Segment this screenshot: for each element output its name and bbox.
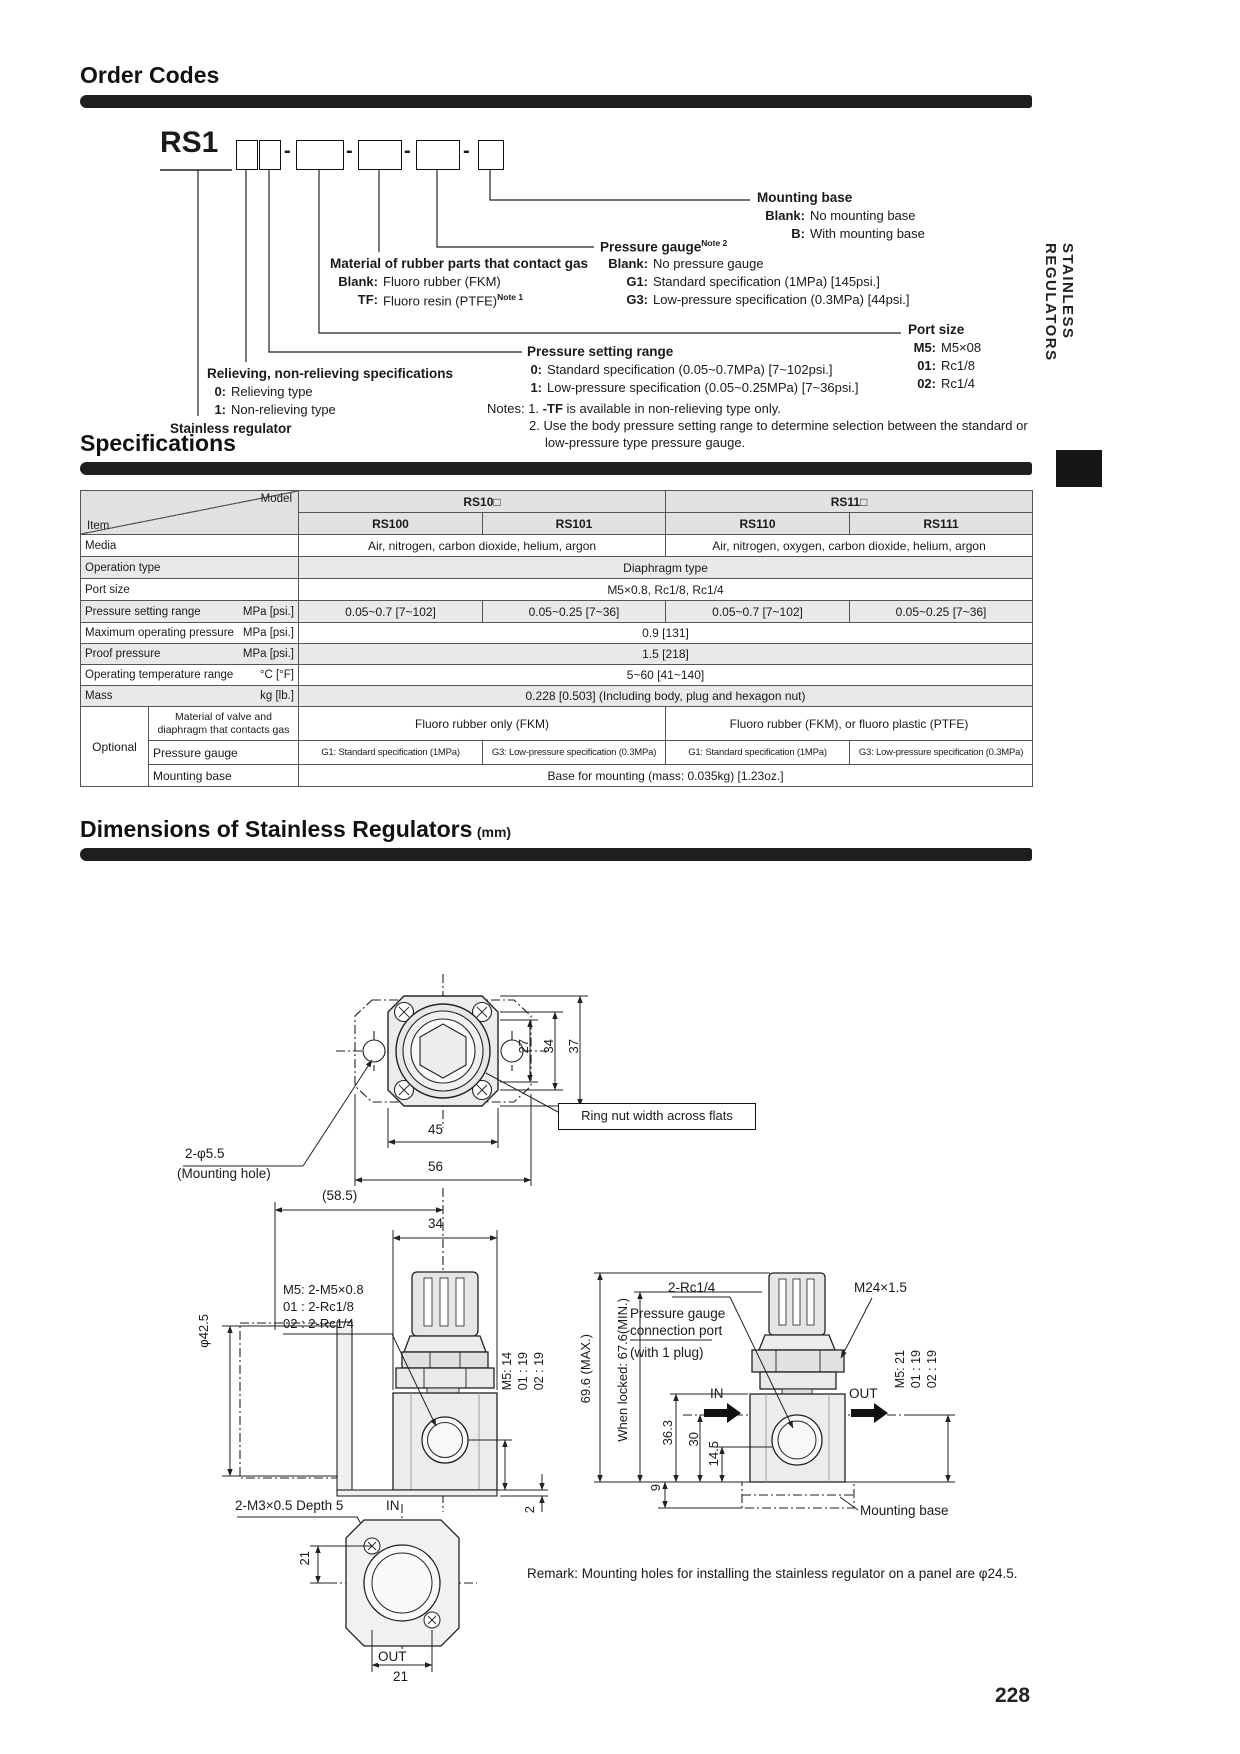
mounting-hole-dim: 2-φ5.5 xyxy=(185,1146,225,1161)
dim-9: 9 xyxy=(648,1484,663,1491)
specifications-title: Specifications xyxy=(80,430,236,457)
specifications-rule xyxy=(80,462,1032,475)
relieving-options: 0:Relieving type 1:Non-relieving type xyxy=(211,384,336,420)
side-tab-label: STAINLESS REGULATORS xyxy=(1042,243,1076,453)
corner-model-label: Model xyxy=(261,493,292,505)
port-thread-02: 02 : 2-Rc1/4 xyxy=(283,1315,364,1332)
table-row: Optional Material of valve and diaphragm… xyxy=(81,707,1033,741)
out-height-02: 02 : 19 xyxy=(925,1350,939,1388)
option-text: Rc1/4 xyxy=(941,376,975,391)
pressure-range-value: 0.05~0.7 [7~102] xyxy=(666,601,850,623)
table-row: Media Air, nitrogen, carbon dioxide, hel… xyxy=(81,535,1033,557)
max-pressure-value: 0.9 [131] xyxy=(299,623,1033,644)
table-row: Port size M5×0.8, Rc1/8, Rc1/4 xyxy=(81,579,1033,601)
order-code-box-material xyxy=(358,140,402,170)
gauge-option: G1: Standard specification (1MPa) xyxy=(299,741,483,765)
dim-2: 2 xyxy=(522,1506,537,1513)
port-size-value: M5×0.8, Rc1/8, Rc1/4 xyxy=(299,579,1033,601)
option-text: Non-relieving type xyxy=(231,402,336,417)
row-label-media: Media xyxy=(81,535,299,557)
row-label-proof-pressure: Proof pressureMPa [psi.] xyxy=(81,644,299,665)
table-row: Proof pressureMPa [psi.] 1.5 [218] xyxy=(81,644,1033,665)
option-code: Blank: xyxy=(600,256,648,271)
option-text: Standard specification (1MPa) [145psi.] xyxy=(653,274,880,289)
option-text: M5×08 xyxy=(941,340,981,355)
catalog-page: Order Codes RS1 - - - - Mounting base Bl… xyxy=(0,0,1240,1754)
corner-item-label: Item xyxy=(87,520,109,532)
mounting-base-callout: Mounting base xyxy=(860,1503,949,1518)
dimensions-unit: (mm) xyxy=(477,824,511,840)
operation-value: Diaphragm type xyxy=(299,557,1033,579)
option-code: M5: xyxy=(908,340,936,355)
media-rs10: Air, nitrogen, carbon dioxide, helium, a… xyxy=(299,535,666,557)
material-options: Blank:Fluoro rubber (FKM) TF:Fluoro resi… xyxy=(330,274,523,311)
option-code: Blank: xyxy=(757,208,805,223)
option-code: TF: xyxy=(330,292,378,308)
order-code-dash: - xyxy=(463,140,470,163)
valve-material-rs11: Fluoro rubber (FKM), or fluoro plastic (… xyxy=(666,707,1033,741)
option-text: No mounting base xyxy=(810,208,916,223)
out-label-side: OUT xyxy=(849,1386,878,1401)
dim-56: 56 xyxy=(428,1159,443,1174)
mounting-base-value: Base for mounting (mass: 0.035kg) [1.23o… xyxy=(299,765,1033,787)
material-title: Material of rubber parts that contact ga… xyxy=(330,256,588,271)
order-code-dash: - xyxy=(284,140,291,163)
pressure-range-value: 0.05~0.25 [7~36] xyxy=(850,601,1033,623)
order-code-box-pressure-gauge xyxy=(416,140,460,170)
note-ref: Note 1 xyxy=(497,292,523,302)
valve-material-rs10: Fluoro rubber only (FKM) xyxy=(299,707,666,741)
option-code: B: xyxy=(757,226,805,241)
row-label-temp-range: Operating temperature range°C [°F] xyxy=(81,665,299,686)
table-row: Masskg [lb.] 0.228 [0.503] (Including bo… xyxy=(81,686,1033,707)
order-code-box-pressure-range xyxy=(259,140,281,170)
order-code-dash: - xyxy=(346,140,353,163)
row-label-pressure-gauge: Pressure gauge xyxy=(149,741,299,765)
model-item-corner-cell: Model Item xyxy=(81,491,299,535)
unit-label: MPa [psi.] xyxy=(243,648,294,660)
column-group-rs11: RS11□ xyxy=(666,491,1033,513)
pressure-gauge-options: Blank:No pressure gauge G1:Standard spec… xyxy=(600,256,910,310)
gauge-option: G1: Standard specification (1MPa) xyxy=(666,741,850,765)
order-code-box-relieving xyxy=(236,140,258,170)
row-label-mounting-base: Mounting base xyxy=(149,765,299,787)
order-code-box-mounting-base xyxy=(478,140,504,170)
row-label-operation: Operation type xyxy=(81,557,299,579)
bottom-view-body xyxy=(346,1520,459,1646)
out-height-01: 01 : 19 xyxy=(909,1350,923,1388)
option-code: 1: xyxy=(211,402,226,417)
port-thread-01: 01 : 2-Rc1/8 xyxy=(283,1298,364,1315)
note2-text: Use the body pressure setting range to d… xyxy=(543,418,1027,433)
pressure-range-value: 0.05~0.7 [7~102] xyxy=(299,601,483,623)
option-text: Relieving type xyxy=(231,384,313,399)
out-label-bottom: OUT xyxy=(378,1649,407,1664)
in-label-front: IN xyxy=(386,1498,400,1513)
option-code: 01: xyxy=(908,358,936,373)
notes-label: Notes: xyxy=(487,401,525,416)
mounting-base-title: Mounting base xyxy=(757,190,852,205)
dimensions-title: Dimensions of Stainless Regulators (mm) xyxy=(80,816,511,843)
option-code: 0: xyxy=(527,362,542,377)
row-label-port-size: Port size xyxy=(81,579,299,601)
dim-67-6-locked: When locked: 67.6(MIN.) xyxy=(615,1298,630,1442)
relieving-title: Relieving, non-relieving specifications xyxy=(207,366,453,381)
option-text: Standard specification (0.05~0.7MPa) [7~… xyxy=(547,362,832,377)
unit-label: MPa [psi.] xyxy=(243,627,294,639)
port-size-title: Port size xyxy=(908,322,964,337)
dim-36-3: 36.3 xyxy=(660,1420,675,1445)
option-text: Rc1/8 xyxy=(941,358,975,373)
order-codes-rule xyxy=(80,95,1032,108)
dim-34-top: 34 xyxy=(541,1039,556,1053)
port-thread-m5: M5: 2-M5×0.8 xyxy=(283,1281,364,1298)
option-text: With mounting base xyxy=(810,226,925,241)
row-label-pressure-range: Pressure setting rangeMPa [psi.] xyxy=(81,601,299,623)
gauge-option: G3: Low-pressure specification (0.3MPa) xyxy=(483,741,666,765)
pressure-range-value: 0.05~0.25 [7~36] xyxy=(483,601,666,623)
gauge-option: G3: Low-pressure specification (0.3MPa) xyxy=(850,741,1033,765)
dim-dia-42-5: φ42.5 xyxy=(196,1314,211,1348)
option-text: Low-pressure specification (0.3MPa) [44p… xyxy=(653,292,910,307)
column-rs111: RS111 xyxy=(850,513,1033,535)
port-thread-callout: M5: 2-M5×0.8 01 : 2-Rc1/8 02 : 2-Rc1/4 xyxy=(283,1281,364,1332)
option-code: 1: xyxy=(527,380,542,395)
table-row: Operation type Diaphragm type xyxy=(81,557,1033,579)
option-code: Blank: xyxy=(330,274,378,289)
media-rs11: Air, nitrogen, oxygen, carbon dioxide, h… xyxy=(666,535,1033,557)
side-view-body xyxy=(750,1273,845,1482)
order-code-box-port-size xyxy=(296,140,344,170)
dim-21-bottom: 21 xyxy=(393,1669,408,1684)
note1-number: 1. xyxy=(528,401,539,416)
note1-code: -TF xyxy=(543,401,563,416)
order-code-prefix: RS1 xyxy=(160,126,218,160)
column-rs100: RS100 xyxy=(299,513,483,535)
dim-27: 27 xyxy=(516,1039,531,1053)
note-ref: Note 2 xyxy=(701,238,727,248)
option-code: 02: xyxy=(908,376,936,391)
dim-14-5: 14.5 xyxy=(706,1441,721,1466)
order-codes-title: Order Codes xyxy=(80,62,219,89)
table-row: Maximum operating pressureMPa [psi.] 0.9… xyxy=(81,623,1033,644)
dim-37: 37 xyxy=(566,1039,581,1053)
row-label-mass: Masskg [lb.] xyxy=(81,686,299,707)
port-height-02: 02 : 19 xyxy=(532,1352,546,1390)
port-height-01: 01 : 19 xyxy=(516,1352,530,1390)
unit-label: kg [lb.] xyxy=(260,690,294,702)
specifications-table: Model Item RS10□ RS11□ RS100 RS101 RS110… xyxy=(80,490,1033,787)
pressure-gauge-title: Pressure gaugeNote 2 xyxy=(600,238,727,255)
in-label-side: IN xyxy=(710,1386,724,1401)
ring-nut-callout: Ring nut width across flats xyxy=(558,1103,756,1130)
table-row: Mounting base Base for mounting (mass: 0… xyxy=(81,765,1033,787)
order-code-dash: - xyxy=(404,140,411,163)
mounting-hole-label: (Mounting hole) xyxy=(177,1166,271,1181)
column-rs110: RS110 xyxy=(666,513,850,535)
dimensions-rule xyxy=(80,848,1032,861)
port-size-options: M5:M5×08 01:Rc1/8 02:Rc1/4 xyxy=(908,340,981,394)
row-label-max-pressure: Maximum operating pressureMPa [psi.] xyxy=(81,623,299,644)
dim-30: 30 xyxy=(686,1432,701,1446)
mounting-base-options: Blank:No mounting base B:With mounting b… xyxy=(757,208,925,244)
column-group-rs10: RS10□ xyxy=(299,491,666,513)
top-view-dimensions xyxy=(183,996,588,1186)
option-code: 0: xyxy=(211,384,226,399)
table-row: Pressure gauge G1: Standard specificatio… xyxy=(81,741,1033,765)
unit-label: °C [°F] xyxy=(260,669,294,681)
note2-text-cont: low-pressure type pressure gauge. xyxy=(545,435,745,450)
dim-21-side: 21 xyxy=(297,1551,312,1565)
column-rs101: RS101 xyxy=(483,513,666,535)
row-label-valve-material: Material of valve and diaphragm that con… xyxy=(149,707,299,741)
mass-value: 0.228 [0.503] (Including body, plug and … xyxy=(299,686,1033,707)
pressure-setting-options: 0:Standard specification (0.05~0.7MPa) [… xyxy=(527,362,858,398)
pressure-gauge-callout-line1: Pressure gauge xyxy=(630,1306,725,1321)
optional-group-label: Optional xyxy=(81,707,149,787)
dim-58-5: (58.5) xyxy=(322,1188,357,1203)
dim-45: 45 xyxy=(428,1122,443,1137)
depth-callout: 2-M3×0.5 Depth 5 xyxy=(235,1498,343,1513)
order-notes: Notes: 1. -TF is available in non-reliev… xyxy=(487,401,1028,450)
pressure-gauge-callout-line2: connection port xyxy=(630,1323,722,1338)
port-height-m5: M5: 14 xyxy=(500,1352,514,1390)
option-text: No pressure gauge xyxy=(653,256,764,271)
dim-69-6-max: 69.6 (MAX.) xyxy=(578,1334,593,1403)
option-text: Fluoro resin (PTFE)Note 1 xyxy=(383,292,523,308)
dim-34-front: 34 xyxy=(428,1216,443,1231)
unit-label: MPa [psi.] xyxy=(243,606,294,618)
option-code: G1: xyxy=(600,274,648,289)
note2-number: 2. xyxy=(529,418,540,433)
remark-text: Remark: Mounting holes for installing th… xyxy=(527,1566,1018,1581)
temp-range-value: 5~60 [41~140] xyxy=(299,665,1033,686)
gauge-port-thread-callout: 2-Rc1/4 xyxy=(668,1280,715,1295)
proof-pressure-value: 1.5 [218] xyxy=(299,644,1033,665)
note1-text: is available in non-relieving type only. xyxy=(567,401,781,416)
option-code: G3: xyxy=(600,292,648,307)
plug-callout: (with 1 plug) xyxy=(630,1345,704,1360)
section-index-tab xyxy=(1056,450,1102,487)
table-row: Operating temperature range°C [°F] 5~60 … xyxy=(81,665,1033,686)
option-text: Low-pressure specification (0.05~0.25MPa… xyxy=(547,380,858,395)
ring-nut-thread-callout: M24×1.5 xyxy=(854,1280,907,1295)
option-text: Fluoro rubber (FKM) xyxy=(383,274,501,289)
page-number: 228 xyxy=(995,1684,1030,1708)
table-row: Pressure setting rangeMPa [psi.] 0.05~0.… xyxy=(81,601,1033,623)
out-height-m5: M5: 21 xyxy=(893,1350,907,1388)
pressure-setting-title: Pressure setting range xyxy=(527,344,673,359)
